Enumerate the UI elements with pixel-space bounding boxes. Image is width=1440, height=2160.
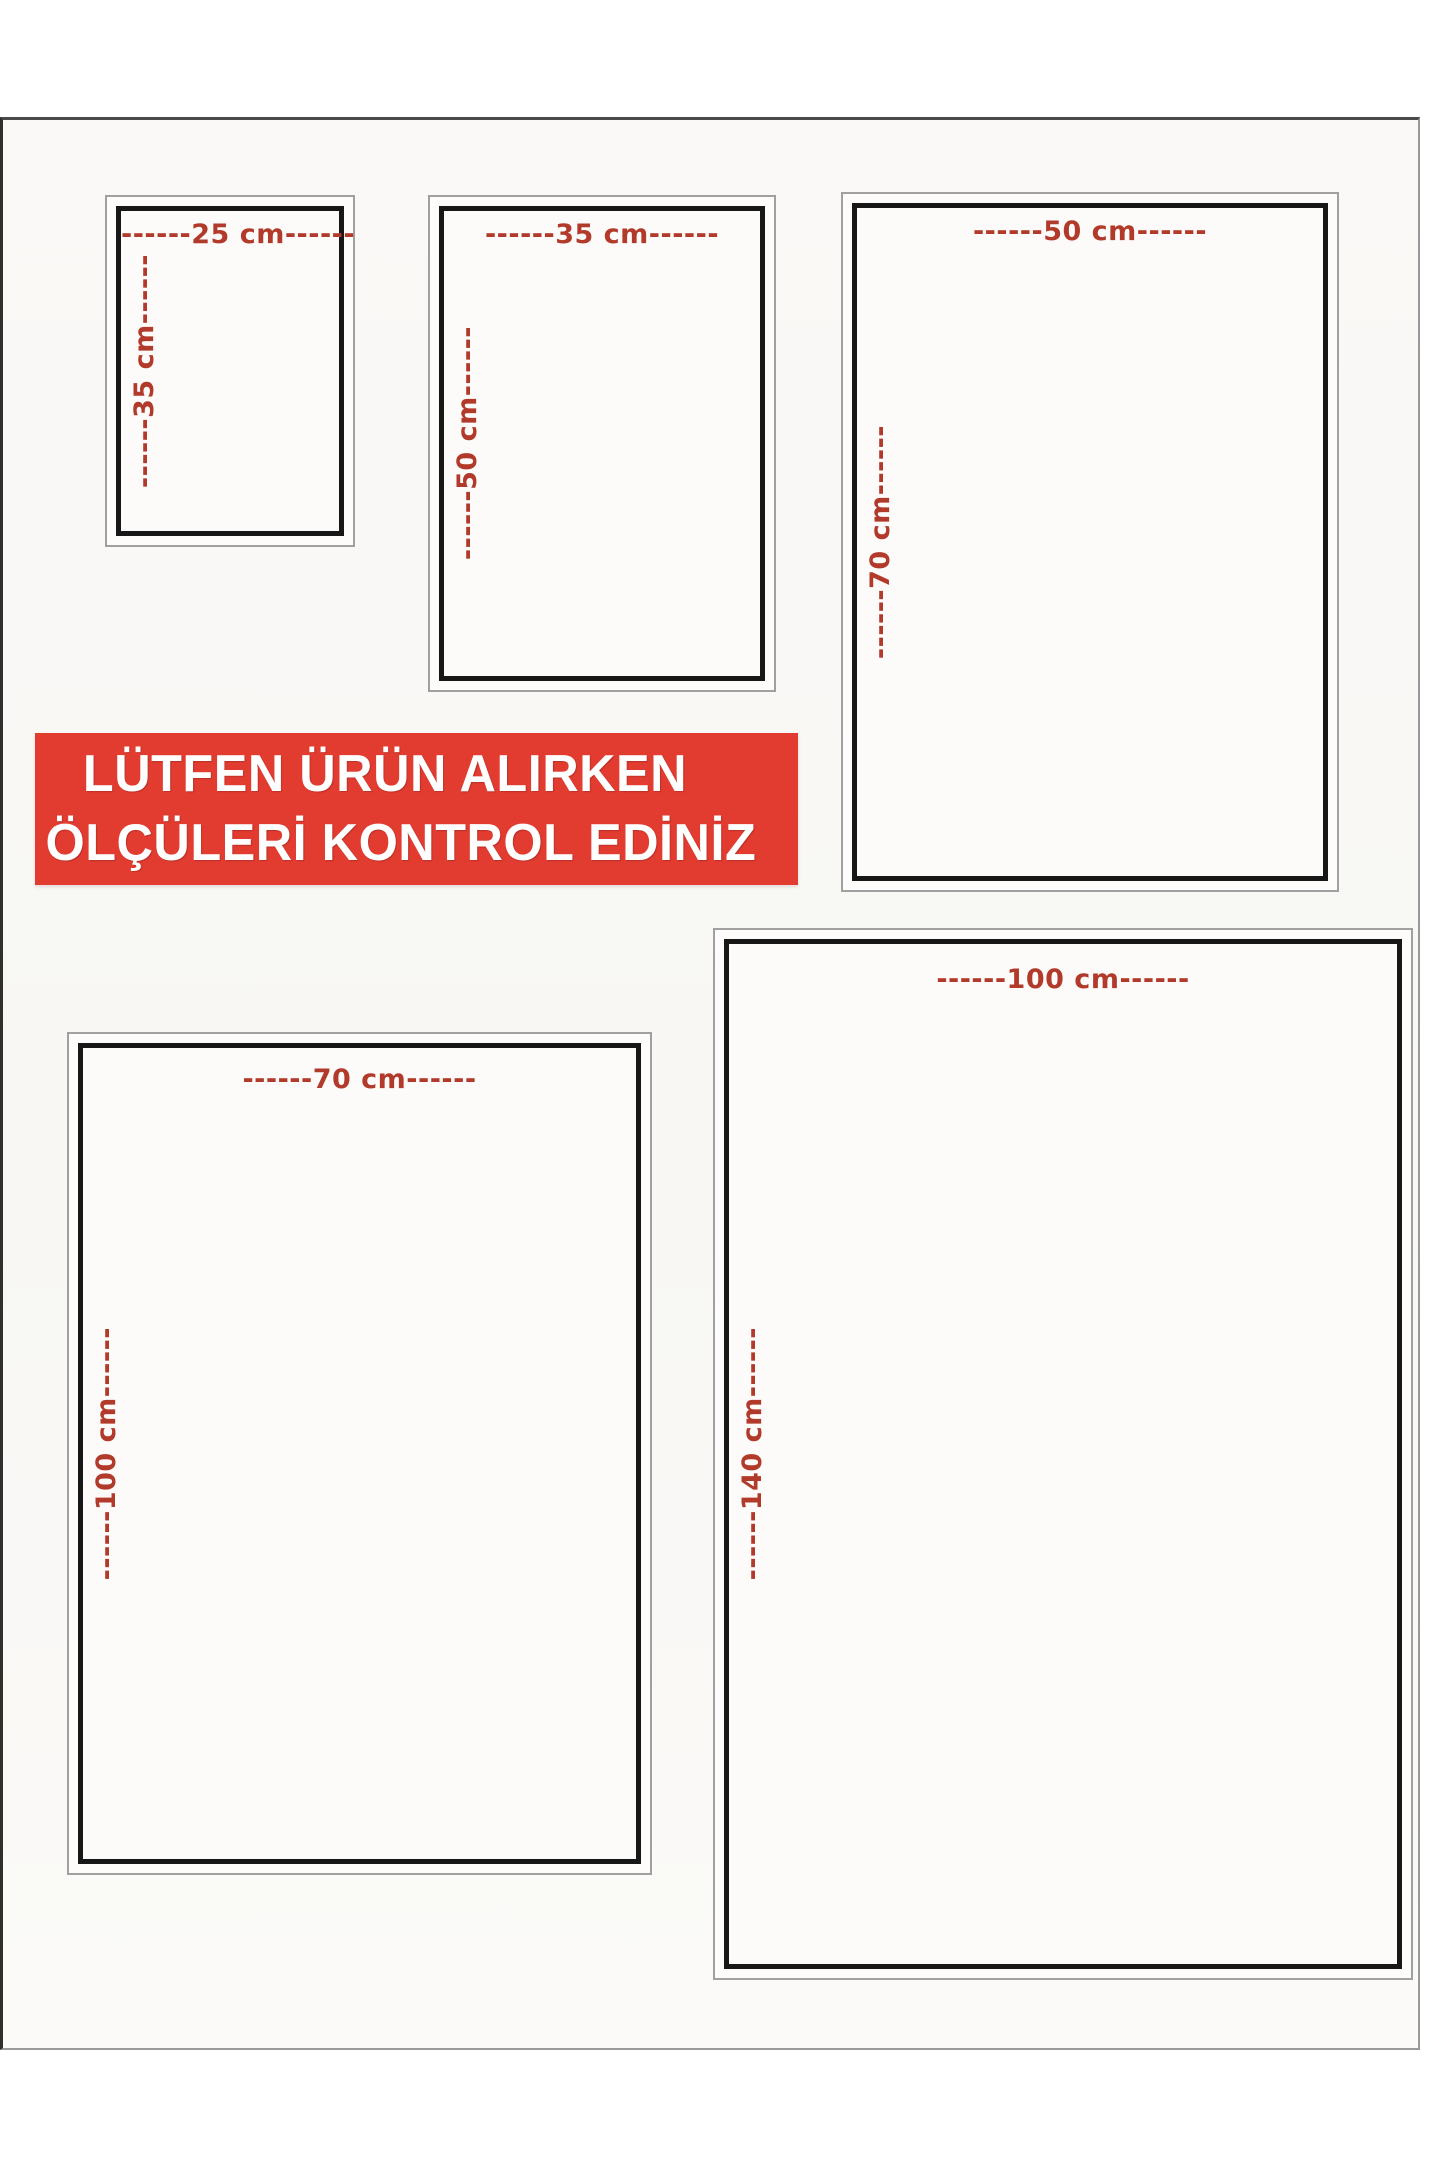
size-box-100x140: ------100 cm------ ------140 cm------ [713, 928, 1413, 1980]
height-dimension-label: ------100 cm------ [91, 1048, 122, 1859]
size-box-25x35-inner: ------25 cm------ ------35 cm------ [116, 206, 344, 536]
height-dimension-label: ------70 cm------ [865, 208, 896, 876]
size-box-50x70-inner: ------50 cm------ ------70 cm------ [852, 203, 1328, 881]
warning-banner-text: LÜTFEN ÜRÜN ALIRKEN ÖLÇÜLERİ KONTROL EDİ… [46, 740, 725, 878]
height-dimension-label: ------50 cm------ [452, 211, 483, 676]
size-box-70x100-inner: ------70 cm------ ------100 cm------ [78, 1043, 641, 1864]
page-sheet: ------25 cm------ ------35 cm------ ----… [0, 117, 1420, 2050]
size-box-50x70: ------50 cm------ ------70 cm------ [841, 192, 1339, 892]
height-dimension-label: ------35 cm------ [129, 211, 160, 531]
size-box-100x140-inner: ------100 cm------ ------140 cm------ [724, 939, 1402, 1969]
size-box-25x35: ------25 cm------ ------35 cm------ [105, 195, 355, 547]
height-dimension-label: ------140 cm------ [737, 944, 768, 1964]
warning-line-2: ÖLÇÜLERİ KONTROL EDİNİZ [46, 809, 725, 878]
size-box-35x50-inner: ------35 cm------ ------50 cm------ [439, 206, 765, 681]
size-guide-canvas: ------25 cm------ ------35 cm------ ----… [0, 0, 1440, 2160]
warning-line-1: LÜTFEN ÜRÜN ALIRKEN [46, 740, 725, 809]
width-dimension-label: ------50 cm------ [857, 216, 1323, 247]
size-box-35x50: ------35 cm------ ------50 cm------ [428, 195, 776, 692]
size-box-70x100: ------70 cm------ ------100 cm------ [67, 1032, 652, 1875]
width-dimension-label: ------35 cm------ [444, 219, 760, 250]
warning-banner: LÜTFEN ÜRÜN ALIRKEN ÖLÇÜLERİ KONTROL EDİ… [35, 733, 798, 885]
width-dimension-label: ------100 cm------ [729, 964, 1397, 995]
width-dimension-label: ------70 cm------ [83, 1064, 636, 1095]
